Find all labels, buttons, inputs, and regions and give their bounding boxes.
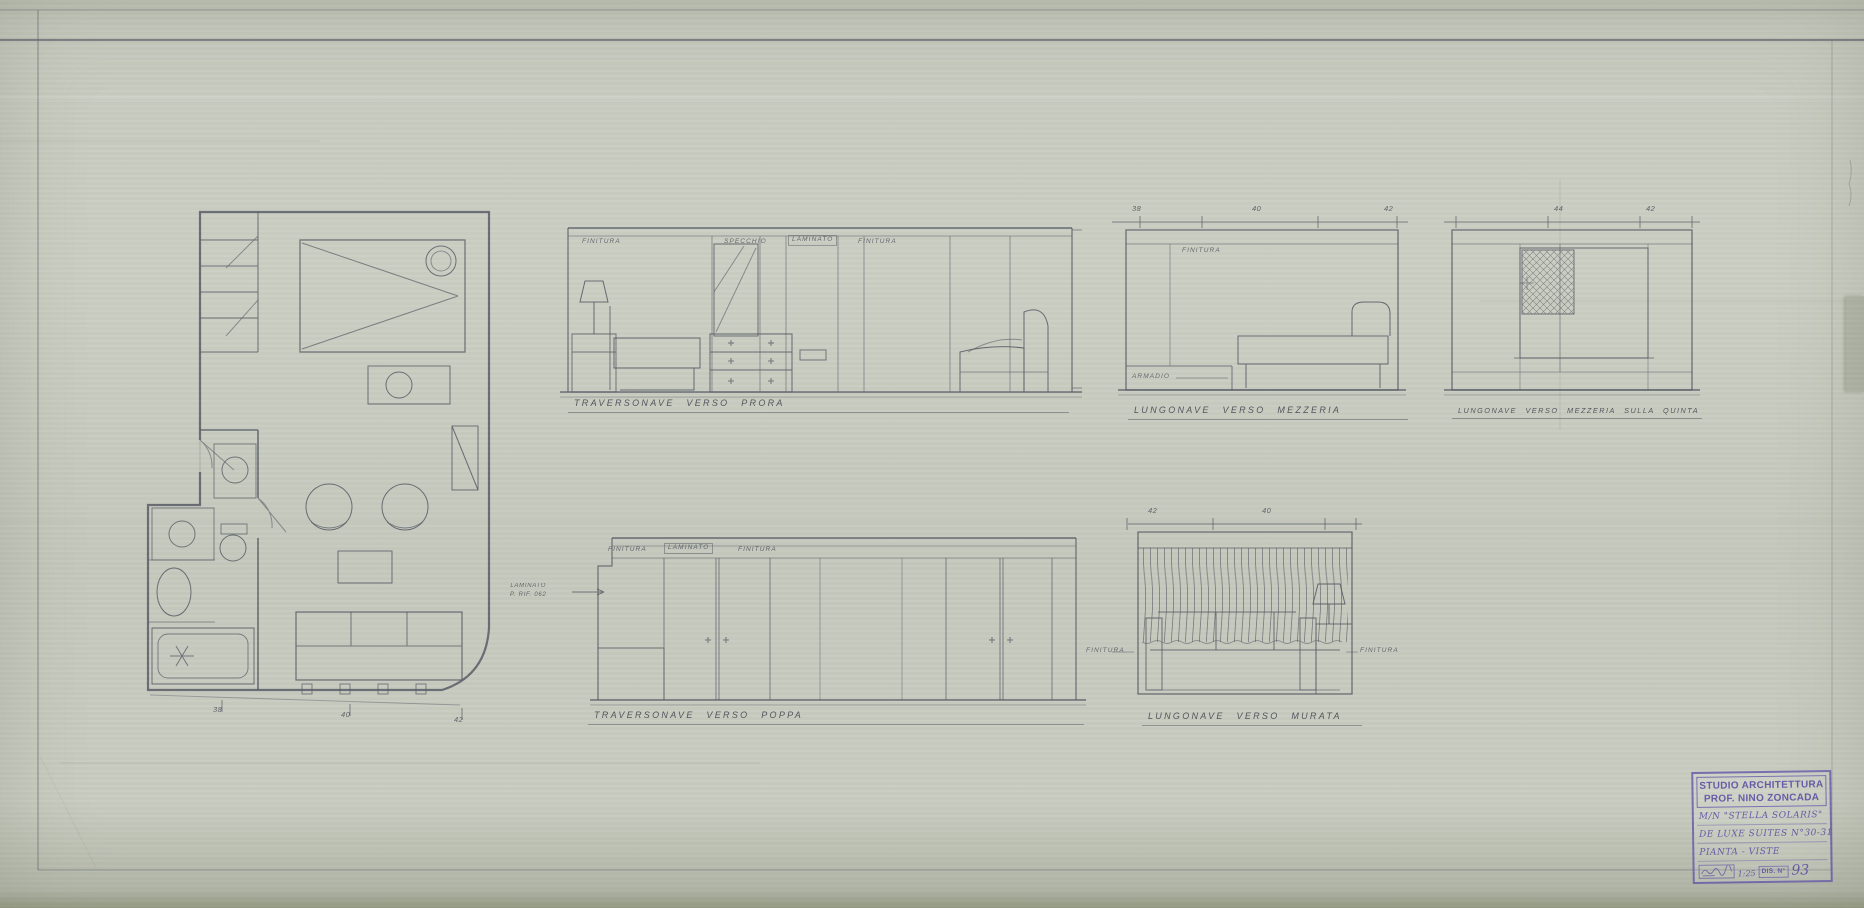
panel-label-finitura: FINITURA: [738, 547, 777, 554]
scale-value: 1:25: [1738, 870, 1756, 878]
ship-name: M/N "STELLA SOLARIS": [1697, 806, 1827, 826]
frame-number: 38: [213, 706, 222, 714]
title-block-stamp: STUDIO ARCHITETTURA PROF. NINO ZONCADA M…: [1691, 770, 1833, 884]
floor-plan: [148, 212, 489, 720]
material-note-line1: LAMINATO: [510, 582, 547, 591]
frame-number: 40: [1252, 205, 1261, 213]
frame-number: 42: [1384, 205, 1393, 213]
elevation-mezzeria: [1112, 216, 1408, 395]
panel-label-specchio: SPECCHIO: [724, 239, 767, 246]
panel-label-armadio: ARMADIO: [1132, 374, 1170, 381]
studio-line2: PROF. NINO ZONCADA: [1698, 791, 1826, 806]
panel-label-finitura: FINITURA: [1182, 248, 1221, 255]
caption-verso-poppa: TRAVERSONAVE VERSO POPPA: [588, 711, 1084, 725]
panel-label-laminato: LAMINATO: [664, 543, 713, 554]
drawing-subject: DE LUXE SUITES N°30-31: [1697, 824, 1827, 844]
sheet-border: [0, 10, 1864, 870]
elevation-prora: [560, 228, 1082, 397]
studio-name: STUDIO ARCHITETTURA PROF. NINO ZONCADA: [1696, 775, 1826, 808]
drawing-linework: [0, 0, 1864, 908]
caption-verso-murata: LUNGONAVE VERSO MURATA: [1142, 712, 1362, 726]
blueprint-sheet: FINITURA SPECCHIO LAMINATO FINITURA FINI…: [0, 0, 1864, 908]
frame-number: 42: [1646, 205, 1655, 213]
material-note: LAMINATO P. RIF. 062: [510, 582, 547, 601]
frame-number: 40: [1262, 507, 1271, 515]
drawing-content: PIANTA - VISTE: [1697, 842, 1827, 862]
caption-verso-mezzeria: LUNGONAVE VERSO MEZZERIA: [1128, 406, 1408, 420]
panel-label-finitura: FINITURA: [582, 239, 621, 246]
panel-label-finitura: FINITURA: [608, 547, 647, 554]
elevation-quinta: [1444, 216, 1700, 395]
frame-number: 42: [1148, 507, 1157, 515]
dis-number: 93: [1791, 865, 1809, 878]
elevation-poppa: [572, 538, 1086, 705]
signature-scribble: [1699, 864, 1735, 879]
panel-label-finitura: FINITURA: [858, 239, 897, 246]
frame-number: 44: [1554, 205, 1563, 213]
frame-number: 42: [454, 716, 463, 724]
dis-label: DIS. N°: [1759, 865, 1789, 878]
frame-number: 40: [341, 711, 350, 719]
elevation-murata: [1112, 518, 1362, 694]
caption-verso-mezzeria-quinta: LUNGONAVE VERSO MEZZERIA SULLA QUINTA: [1452, 407, 1702, 419]
frame-number: 38: [1132, 205, 1141, 213]
panel-label-finitura: FINITURA: [1086, 648, 1125, 655]
material-note-line2: P. RIF. 062: [510, 591, 547, 600]
caption-verso-prora: TRAVERSONAVE VERSO PRORA: [568, 399, 1069, 413]
stamp-bottom-row: 1:25 DIS. N° 93: [1697, 860, 1827, 880]
panel-label-laminato: LAMINATO: [788, 235, 837, 246]
panel-label-finitura: FINITURA: [1360, 648, 1399, 655]
